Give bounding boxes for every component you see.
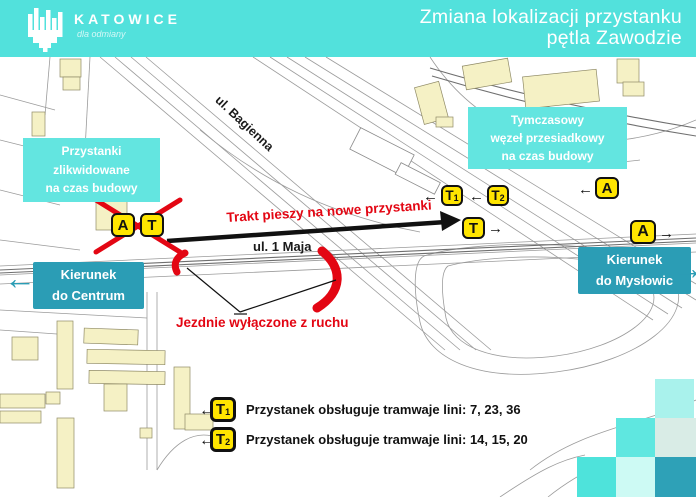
marker-sub: 1	[454, 194, 459, 203]
legend-badge-t2: T2	[210, 427, 236, 452]
direction-myslowic-line1: Kierunek	[607, 250, 663, 270]
direction-box-centrum: Kierunek do Centrum	[33, 262, 144, 309]
direction-myslowic-line2: do Mysłowic	[596, 271, 673, 291]
marker-label: A	[637, 223, 649, 241]
street-label-1maja: ul. 1 Maja	[253, 239, 312, 254]
mosaic-square	[616, 457, 655, 497]
callout-hub-line2: węzeł przesiadkowy	[490, 129, 604, 147]
stop-marker-a-lower: A	[630, 220, 656, 244]
marker-label: T	[445, 188, 453, 203]
stop-marker-removed-t: T	[140, 213, 164, 237]
marker-sub: 2	[500, 194, 505, 203]
legend-badge-label: T	[216, 431, 225, 448]
direction-centrum-line2: do Centrum	[52, 286, 125, 306]
direction-centrum-arrow-icon	[4, 262, 36, 294]
direction-myslowic-arrow-icon	[672, 252, 696, 284]
marker-a-lower-arrow-icon	[659, 226, 674, 241]
legend-badge-label: T	[216, 401, 225, 418]
direction-centrum-line1: Kierunek	[61, 265, 117, 285]
closed-road-arcs	[175, 251, 337, 308]
mosaic-square	[577, 457, 616, 497]
callout-removed-stops: Przystanki zlikwidowane na czas budowy	[23, 138, 160, 202]
legend-badge-t1: T1	[210, 397, 236, 422]
mosaic-square	[616, 418, 655, 457]
stop-marker-removed-a: A	[111, 213, 135, 237]
callout-removed-line1: Przystanki zlikwidowane	[23, 142, 160, 179]
marker-t-lower-arrow-icon	[488, 221, 503, 236]
legend-badge-sub: 1	[225, 408, 230, 417]
callout-hub-line1: Tymczasowy	[511, 111, 584, 129]
poster-root: KATOWICE dla odmiany Zmiana lokalizacji …	[0, 0, 696, 497]
stop-marker-a-upper: A	[595, 177, 619, 199]
callout-temporary-hub: Tymczasowy węzeł przesiadkowy na czas bu…	[468, 107, 627, 169]
callout-removed-line2: na czas budowy	[45, 179, 137, 198]
stop-marker-t2: T2	[487, 185, 509, 206]
marker-label: A	[602, 180, 613, 197]
marker-label: T	[147, 217, 156, 234]
marker-t1-arrow-icon	[423, 189, 438, 204]
mosaic-square	[655, 457, 696, 497]
stop-marker-t1: T1	[441, 185, 463, 206]
legend-text-t2: Przystanek obsługuje tramwaje lini: 14, …	[246, 432, 528, 447]
mosaic-square	[655, 379, 694, 418]
marker-label: T	[491, 188, 499, 203]
legend-badge-sub: 2	[225, 438, 230, 447]
mosaic-square	[655, 418, 696, 457]
stop-marker-t-lower: T	[462, 217, 485, 239]
marker-a-upper-arrow-icon	[578, 182, 593, 197]
marker-label: T	[469, 220, 478, 237]
marker-label: A	[118, 217, 129, 234]
legend-text-t1: Przystanek obsługuje tramwaje lini: 7, 2…	[246, 402, 521, 417]
marker-t2-arrow-icon	[469, 189, 484, 204]
callout-hub-line3: na czas budowy	[501, 147, 593, 165]
closed-roads-annotation: Jezdnie wyłączone z ruchu	[176, 315, 349, 330]
